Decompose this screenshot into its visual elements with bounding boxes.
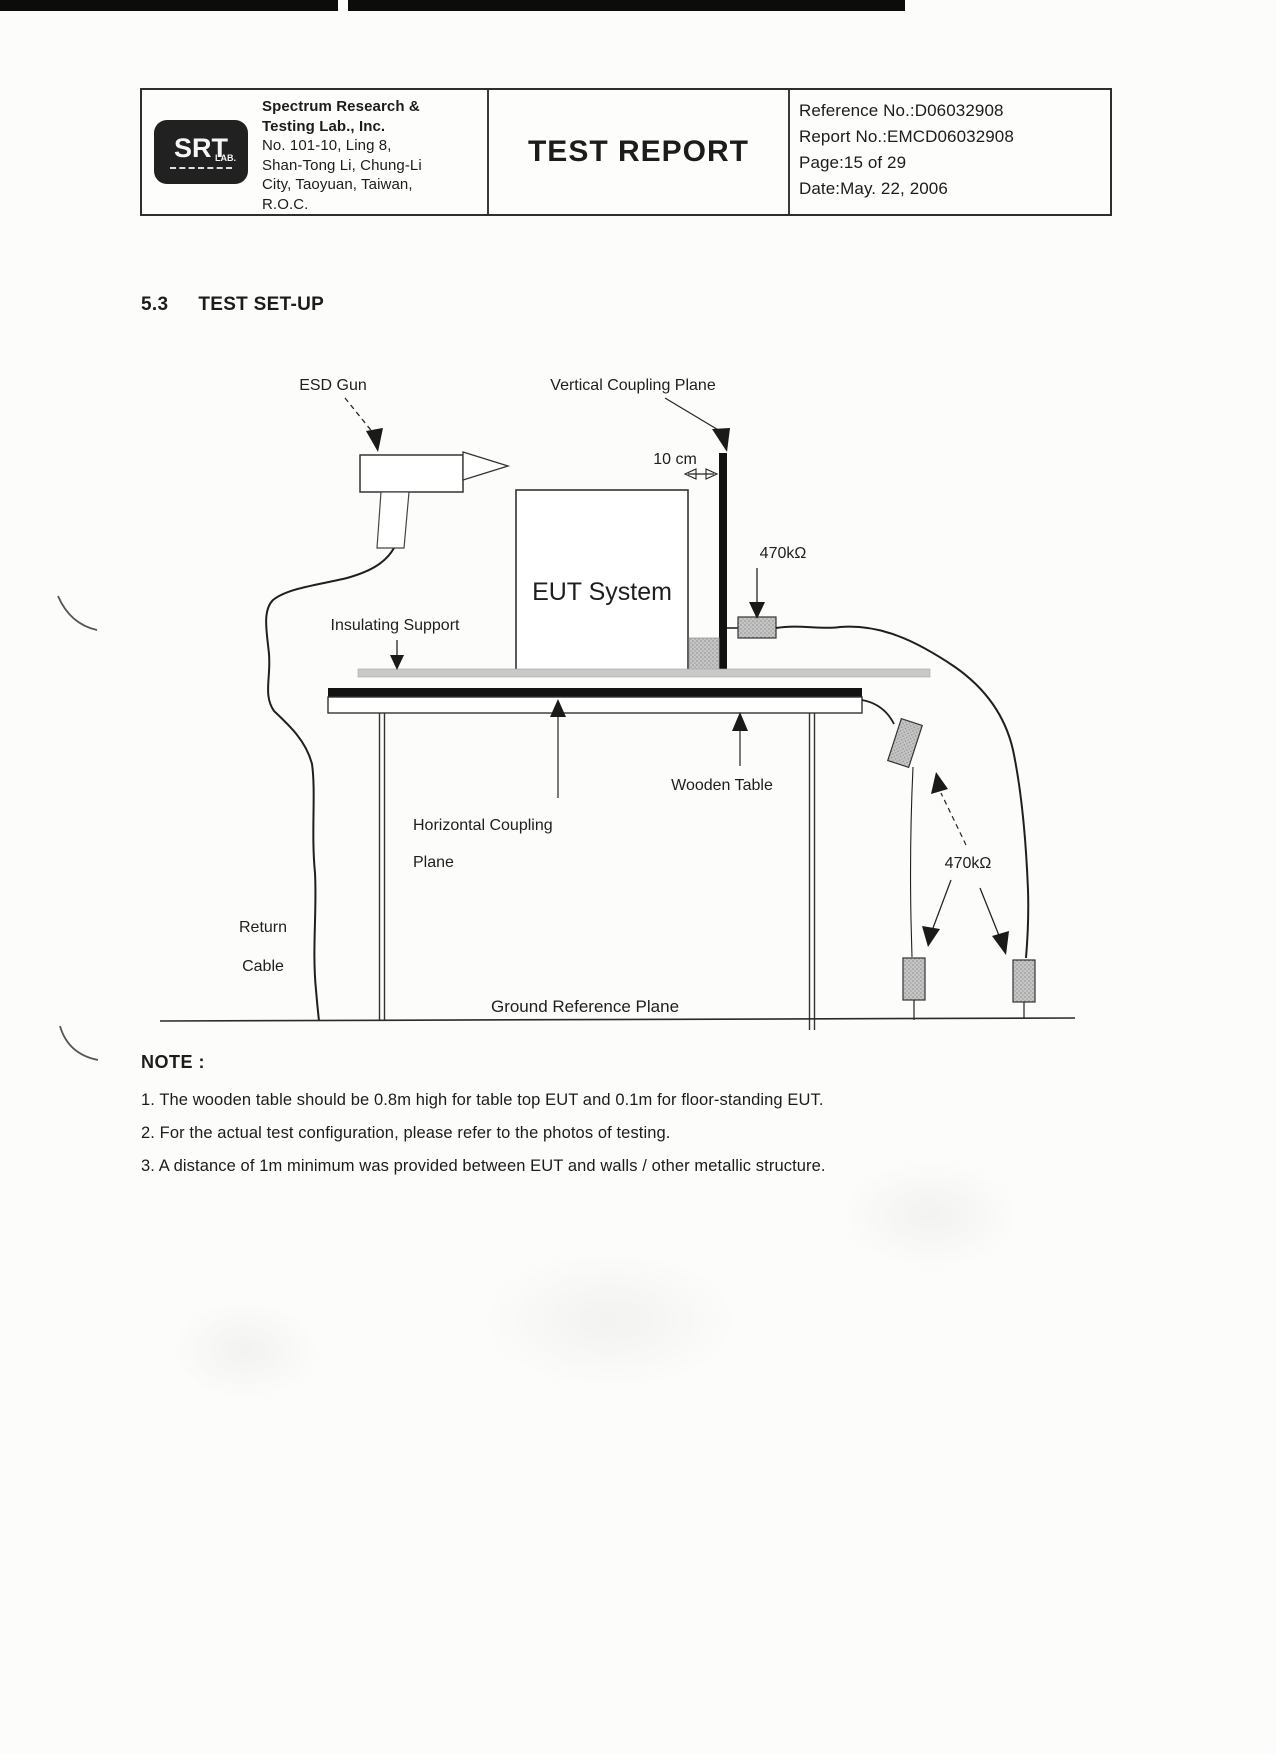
vertical-coupling-plane-bar xyxy=(719,453,727,675)
hcp-ground-cable-lower xyxy=(911,767,913,957)
note-items: 1. The wooden table should be 0.8m high … xyxy=(141,1084,1101,1183)
resistor-bottom-pointer-left xyxy=(933,880,951,928)
vertical-coupling-plane-label: Vertical Coupling Plane xyxy=(550,377,716,394)
vcp-support-block xyxy=(689,638,719,674)
resistor-bottom-pointer-right-arrowhead xyxy=(992,931,1009,955)
resistor-470k-top xyxy=(738,617,776,638)
page-curl-mark xyxy=(58,596,97,630)
insulating-support-label: Insulating Support xyxy=(331,617,461,634)
vcp-pointer-line xyxy=(665,398,720,431)
resistor-470k-bottom-label: 470kΩ xyxy=(945,855,992,872)
resistor-470k-ground-left xyxy=(903,958,925,1000)
note-item: 1. The wooden table should be 0.8m high … xyxy=(141,1084,1101,1117)
scanned-test-report-page: { "page": { "colors": { "ink": "#1c1c1c"… xyxy=(0,0,1276,1754)
esd-gun-pointer-line xyxy=(345,398,374,434)
horizontal-coupling-plane-bar xyxy=(328,688,862,697)
esd-gun-tip xyxy=(463,452,508,480)
resistor-bottom-pointer-left-arrowhead xyxy=(922,926,940,947)
wooden-table-label: Wooden Table xyxy=(671,777,773,794)
ground-reference-plane-label: Ground Reference Plane xyxy=(491,997,679,1016)
esd-gun-handle xyxy=(377,492,409,548)
resistor-470k-tilted xyxy=(888,719,923,768)
note-item: 3. A distance of 1m minimum was provided… xyxy=(141,1150,1101,1183)
wooden-table-top xyxy=(328,697,862,713)
esd-gun-shape xyxy=(360,452,508,548)
resistor-470k-top-label: 470kΩ xyxy=(760,545,807,562)
insulating-support-strip xyxy=(358,669,930,677)
note-section: NOTE : 1. The wooden table should be 0.8… xyxy=(141,1052,1101,1183)
resistor-bottom-pointer-up-arrowhead xyxy=(931,772,948,794)
note-heading: NOTE : xyxy=(141,1052,1101,1073)
horizontal-coupling-plane-label: Horizontal Coupling xyxy=(413,817,553,834)
note-item: 2. For the actual test configuration, pl… xyxy=(141,1117,1101,1150)
esd-gun-label: ESD Gun xyxy=(299,377,367,394)
wooden-table-pointer-arrowhead xyxy=(732,712,748,731)
insulating-support-pointer-arrowhead xyxy=(390,655,404,670)
page-curl-mark xyxy=(60,1026,98,1060)
esd-gun-pointer-arrowhead xyxy=(366,428,383,452)
return-cable-label: Return xyxy=(239,919,287,936)
horizontal-coupling-plane-label-line2: Plane xyxy=(413,854,454,871)
ground-reference-plane-line xyxy=(160,1018,1075,1021)
test-setup-diagram: ESD Gun Vertical Coupling Plane 10 cm EU… xyxy=(0,0,1276,1754)
return-cable-label-line2: Cable xyxy=(242,958,284,975)
esd-gun-body xyxy=(360,455,463,492)
resistor-bottom-pointer-up xyxy=(941,793,966,845)
hcp-ground-cable-upper xyxy=(862,700,894,724)
vcp-pointer-arrowhead xyxy=(712,428,730,452)
eut-system-label: EUT System xyxy=(532,578,672,606)
resistor-470k-ground-right xyxy=(1013,960,1035,1002)
distance-10cm-label: 10 cm xyxy=(653,451,697,468)
resistor-bottom-pointer-right xyxy=(980,888,1000,938)
